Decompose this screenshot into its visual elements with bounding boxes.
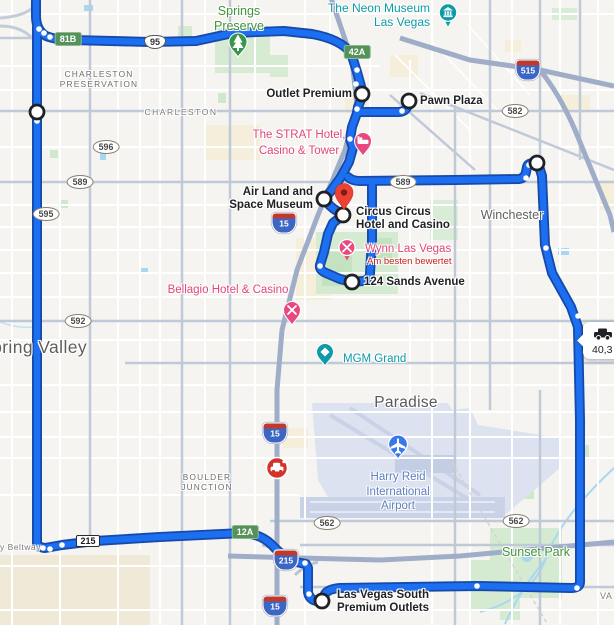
exit-badge-42a: 42A — [344, 45, 371, 59]
i15-shield-bottom: 15 — [263, 596, 288, 617]
label-sunset-park[interactable]: Sunset Park — [502, 545, 570, 560]
sr596-shield: 596 — [93, 140, 120, 154]
waypoint-sands-avenue[interactable] — [345, 275, 359, 289]
waypoint-pawn-plaza[interactable] — [402, 94, 416, 108]
waypoint-air-land-space-museum[interactable] — [317, 192, 331, 206]
label-winchester: Winchester — [481, 208, 544, 222]
label-sands-avenue[interactable]: 124 Sands Avenue — [364, 276, 465, 289]
label-harry-reid-airport[interactable]: Harry Reid International Airport — [366, 470, 429, 514]
waypoint-lv-south-outlets[interactable] — [315, 594, 329, 608]
waypoint-outlet-premium[interactable] — [355, 87, 369, 101]
strat-hotel-bed-icon[interactable] — [355, 133, 372, 157]
label-air-land-space-museum[interactable]: Air Land and Space Museum — [229, 186, 313, 212]
label-spring-valley: Spring Valley — [0, 337, 87, 358]
label-road-fragment-va: VA — [600, 591, 612, 601]
label-circus-circus[interactable]: Circus Circus Hotel and Casino — [356, 206, 450, 232]
label-wynn-rating: Am besten bewertet — [367, 256, 452, 267]
i515-shield: 515 — [516, 60, 541, 81]
label-outlet-premium[interactable]: Outlet Premium — [266, 88, 352, 101]
label-charleston-road: CHARLESTON — [145, 107, 218, 117]
label-neon-museum[interactable]: The Neon Museum Las Vegas — [328, 1, 430, 29]
label-springs-preserve[interactable]: Springs Preserve — [214, 4, 264, 34]
label-boulder-junction: BOULDER JUNCTION — [181, 473, 233, 492]
sr562-shield-east: 562 — [503, 514, 530, 528]
waypoint-circus-circus[interactable] — [336, 208, 350, 222]
waypoint-winchester[interactable] — [530, 156, 544, 170]
traffic-incident-icon[interactable] — [267, 458, 288, 479]
i15-shield-south: 15 — [263, 423, 288, 444]
label-mgm-grand[interactable]: MGM Grand — [343, 352, 406, 366]
label-charleston-preservation: CHARLESTON PRESERVATION — [60, 70, 139, 89]
label-strat-hotel[interactable]: The STRAT Hotel, Casino & Tower — [253, 128, 346, 159]
sr589-shield-west: 589 — [67, 175, 94, 189]
exit-badge-81b: 81B — [55, 32, 82, 46]
exit-badge-12a: 12A — [232, 525, 259, 539]
label-beltway-fragment: y Beltway — [0, 542, 41, 552]
label-pawn-plaza[interactable]: Pawn Plaza — [420, 95, 483, 108]
label-bellagio[interactable]: Bellagio Hotel & Casino — [168, 283, 289, 299]
sr582-shield: 582 — [502, 104, 529, 118]
neon-museum-icon[interactable] — [439, 4, 457, 27]
i15-shield-mid: 15 — [272, 213, 297, 234]
airport-area — [300, 403, 560, 518]
car-icon — [593, 327, 613, 342]
sr592-shield: 592 — [65, 314, 92, 328]
route-distance-callout[interactable]: 40,3 — [583, 322, 614, 359]
sr589-shield-route: 589 — [390, 175, 417, 189]
callout-distance-value: 40,3 — [592, 344, 612, 356]
cc215-rect-badge: 215 — [76, 535, 100, 547]
waypoint-charleston[interactable] — [30, 105, 44, 119]
label-lv-south-outlets[interactable]: Las Vegas South Premium Outlets — [337, 589, 429, 615]
sr562-shield-west: 562 — [314, 516, 341, 530]
sr595-shield: 595 — [33, 207, 60, 221]
label-paradise: Paradise — [374, 394, 438, 412]
google-maps-viewport[interactable]: Springs Preserve The Neon Museum Las Veg… — [0, 0, 614, 625]
i215-shield: 215 — [274, 550, 299, 571]
